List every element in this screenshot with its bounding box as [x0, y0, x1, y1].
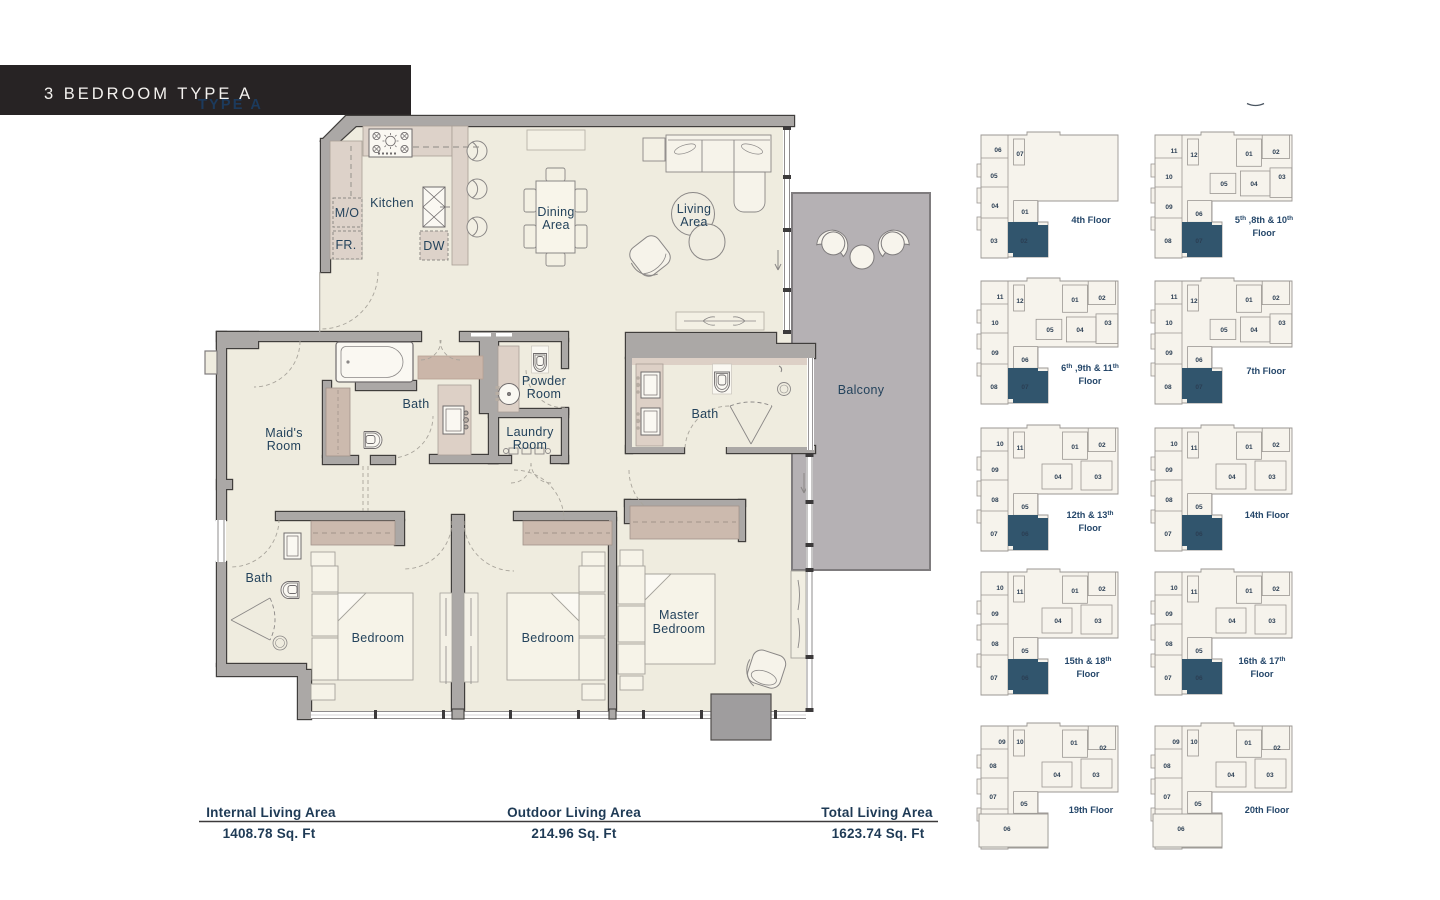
svg-text:07: 07	[1164, 531, 1172, 538]
svg-text:05: 05	[1220, 181, 1228, 188]
svg-text:FR.: FR.	[335, 238, 356, 252]
svg-text:Floor: Floor	[1079, 523, 1102, 533]
svg-text:09: 09	[1165, 204, 1173, 211]
svg-text:20th Floor: 20th Floor	[1245, 805, 1290, 815]
svg-text:M/O: M/O	[335, 206, 360, 220]
svg-text:02: 02	[1272, 586, 1280, 593]
svg-text:10: 10	[1170, 585, 1178, 592]
svg-text:01: 01	[1244, 740, 1252, 747]
svg-text:03: 03	[1266, 772, 1274, 779]
svg-text:Kitchen: Kitchen	[370, 196, 414, 210]
svg-text:11: 11	[1171, 148, 1178, 155]
svg-text:14th Floor: 14th Floor	[1245, 510, 1290, 520]
svg-text:11: 11	[1017, 589, 1024, 596]
svg-text:1408.78 Sq. Ft: 1408.78 Sq. Ft	[223, 826, 316, 841]
svg-text:Room: Room	[513, 438, 548, 452]
svg-text:12th & 13th: 12th & 13th	[1067, 510, 1114, 520]
svg-text:06: 06	[1195, 211, 1203, 218]
svg-text:11: 11	[1191, 589, 1198, 596]
svg-text:10: 10	[996, 441, 1004, 448]
svg-text:Master: Master	[659, 608, 699, 622]
svg-text:Room: Room	[267, 439, 302, 453]
svg-text:07: 07	[990, 531, 998, 538]
svg-text:04: 04	[1227, 772, 1235, 779]
svg-text:09: 09	[1172, 739, 1180, 746]
svg-text:10: 10	[991, 320, 999, 327]
svg-text:07: 07	[1195, 238, 1203, 245]
svg-text:04: 04	[1228, 474, 1236, 481]
svg-text:11: 11	[1017, 445, 1024, 452]
svg-text:Internal Living Area: Internal Living Area	[206, 805, 336, 820]
svg-text:3 BEDROOM TYPE A: 3 BEDROOM TYPE A	[44, 85, 253, 103]
svg-text:02: 02	[1020, 238, 1028, 245]
svg-text:01: 01	[1071, 297, 1079, 304]
svg-text:06: 06	[1021, 531, 1029, 538]
svg-text:1623.74 Sq. Ft: 1623.74 Sq. Ft	[832, 826, 925, 841]
svg-text:08: 08	[990, 384, 998, 391]
svg-text:Floor: Floor	[1079, 376, 1102, 386]
svg-text:05: 05	[990, 173, 998, 180]
svg-text:Laundry: Laundry	[506, 425, 554, 439]
svg-text:Bedroom: Bedroom	[653, 622, 706, 636]
svg-text:Floor: Floor	[1253, 228, 1276, 238]
svg-text:05: 05	[1195, 504, 1203, 511]
svg-text:09: 09	[998, 739, 1006, 746]
svg-text:08: 08	[1164, 384, 1172, 391]
svg-text:04: 04	[1054, 618, 1062, 625]
svg-text:Total Living Area: Total Living Area	[821, 805, 933, 820]
svg-text:02: 02	[1098, 295, 1106, 302]
svg-text:02: 02	[1272, 149, 1280, 156]
svg-text:05: 05	[1046, 327, 1054, 334]
svg-text:10: 10	[1170, 441, 1178, 448]
svg-text:03: 03	[1104, 320, 1112, 327]
svg-text:Bath: Bath	[403, 397, 430, 411]
svg-text:05: 05	[1195, 648, 1203, 655]
svg-text:Powder: Powder	[522, 374, 566, 388]
svg-text:07: 07	[1021, 384, 1029, 391]
svg-text:07: 07	[1016, 151, 1024, 158]
svg-text:15th & 18th: 15th & 18th	[1065, 656, 1112, 666]
svg-text:09: 09	[1165, 350, 1173, 357]
svg-text:Floor: Floor	[1251, 669, 1274, 679]
svg-text:Bath: Bath	[692, 407, 719, 421]
svg-text:06: 06	[1195, 531, 1203, 538]
svg-text:06: 06	[1021, 357, 1029, 364]
svg-text:01: 01	[1245, 588, 1253, 595]
svg-text:10: 10	[1165, 174, 1173, 181]
svg-text:08: 08	[991, 641, 999, 648]
svg-text:08: 08	[1163, 763, 1171, 770]
svg-text:06: 06	[1195, 357, 1203, 364]
svg-text:Living: Living	[677, 202, 711, 216]
svg-text:04: 04	[991, 203, 999, 210]
svg-text:09: 09	[1165, 467, 1173, 474]
svg-text:02: 02	[1272, 295, 1280, 302]
svg-text:06: 06	[1177, 826, 1185, 833]
svg-text:03: 03	[1278, 174, 1286, 181]
svg-text:Balcony: Balcony	[838, 383, 885, 397]
svg-text:02: 02	[1273, 745, 1281, 752]
svg-text:06: 06	[1021, 675, 1029, 682]
svg-text:09: 09	[991, 350, 999, 357]
svg-text:03: 03	[1094, 618, 1102, 625]
svg-text:05: 05	[1020, 801, 1028, 808]
svg-text:Room: Room	[527, 387, 562, 401]
svg-text:05: 05	[1021, 504, 1029, 511]
svg-text:01: 01	[1245, 444, 1253, 451]
svg-text:09: 09	[1165, 611, 1173, 618]
svg-text:5th ,8th & 10th: 5th ,8th & 10th	[1235, 215, 1293, 225]
svg-text:01: 01	[1071, 588, 1079, 595]
svg-text:10: 10	[996, 585, 1004, 592]
svg-text:04: 04	[1054, 474, 1062, 481]
svg-text:06: 06	[1003, 826, 1011, 833]
svg-text:01: 01	[1245, 151, 1253, 158]
svg-text:07: 07	[1164, 675, 1172, 682]
svg-text:01: 01	[1071, 444, 1079, 451]
svg-text:04: 04	[1053, 772, 1061, 779]
svg-text:04: 04	[1076, 327, 1084, 334]
svg-text:07: 07	[990, 675, 998, 682]
svg-text:06: 06	[994, 147, 1002, 154]
svg-text:Maid's: Maid's	[265, 426, 303, 440]
svg-text:10: 10	[1165, 320, 1173, 327]
svg-text:6th ,9th & 11th: 6th ,9th & 11th	[1061, 363, 1119, 373]
svg-text:05: 05	[1220, 327, 1228, 334]
svg-text:19th Floor: 19th Floor	[1069, 805, 1114, 815]
svg-text:Floor: Floor	[1077, 669, 1100, 679]
svg-text:08: 08	[1165, 497, 1173, 504]
svg-text:4th Floor: 4th Floor	[1071, 215, 1111, 225]
svg-text:Bath: Bath	[246, 571, 273, 585]
svg-text:07: 07	[989, 794, 997, 801]
svg-text:11: 11	[1191, 445, 1198, 452]
svg-text:12: 12	[1190, 298, 1198, 305]
svg-text:04: 04	[1250, 327, 1258, 334]
svg-text:12: 12	[1190, 152, 1198, 159]
svg-text:Dining: Dining	[537, 205, 574, 219]
svg-text:08: 08	[991, 497, 999, 504]
svg-text:08: 08	[1164, 238, 1172, 245]
svg-text:06: 06	[1195, 675, 1203, 682]
svg-text:02: 02	[1098, 442, 1106, 449]
svg-text:03: 03	[1094, 474, 1102, 481]
svg-text:7th Floor: 7th Floor	[1246, 366, 1286, 376]
svg-text:10: 10	[1016, 739, 1024, 746]
svg-text:09: 09	[991, 611, 999, 618]
svg-text:02: 02	[1099, 745, 1107, 752]
svg-text:03: 03	[990, 238, 998, 245]
svg-text:Bedroom: Bedroom	[352, 631, 405, 645]
svg-text:16th & 17th: 16th & 17th	[1239, 656, 1286, 666]
svg-text:07: 07	[1195, 384, 1203, 391]
svg-text:Bedroom: Bedroom	[522, 631, 575, 645]
svg-text:08: 08	[989, 763, 997, 770]
svg-text:DW: DW	[423, 239, 444, 253]
svg-text:08: 08	[1165, 641, 1173, 648]
svg-text:11: 11	[1171, 294, 1178, 301]
svg-text:03: 03	[1278, 320, 1286, 327]
svg-text:09: 09	[991, 467, 999, 474]
svg-text:02: 02	[1272, 442, 1280, 449]
svg-text:05: 05	[1021, 648, 1029, 655]
svg-text:03: 03	[1268, 474, 1276, 481]
svg-text:03: 03	[1268, 618, 1276, 625]
svg-text:01: 01	[1245, 297, 1253, 304]
svg-text:07: 07	[1163, 794, 1171, 801]
svg-text:01: 01	[1070, 740, 1078, 747]
svg-text:04: 04	[1228, 618, 1236, 625]
svg-text:214.96 Sq. Ft: 214.96 Sq. Ft	[531, 826, 616, 841]
svg-text:01: 01	[1021, 209, 1029, 216]
svg-text:Area: Area	[680, 215, 708, 229]
svg-text:11: 11	[997, 294, 1004, 301]
svg-text:05: 05	[1194, 801, 1202, 808]
svg-text:10: 10	[1190, 739, 1198, 746]
svg-text:Outdoor Living Area: Outdoor Living Area	[507, 805, 641, 820]
svg-text:03: 03	[1092, 772, 1100, 779]
svg-text:04: 04	[1250, 181, 1258, 188]
svg-text:Area: Area	[542, 218, 570, 232]
svg-text:12: 12	[1016, 298, 1024, 305]
svg-text:02: 02	[1098, 586, 1106, 593]
